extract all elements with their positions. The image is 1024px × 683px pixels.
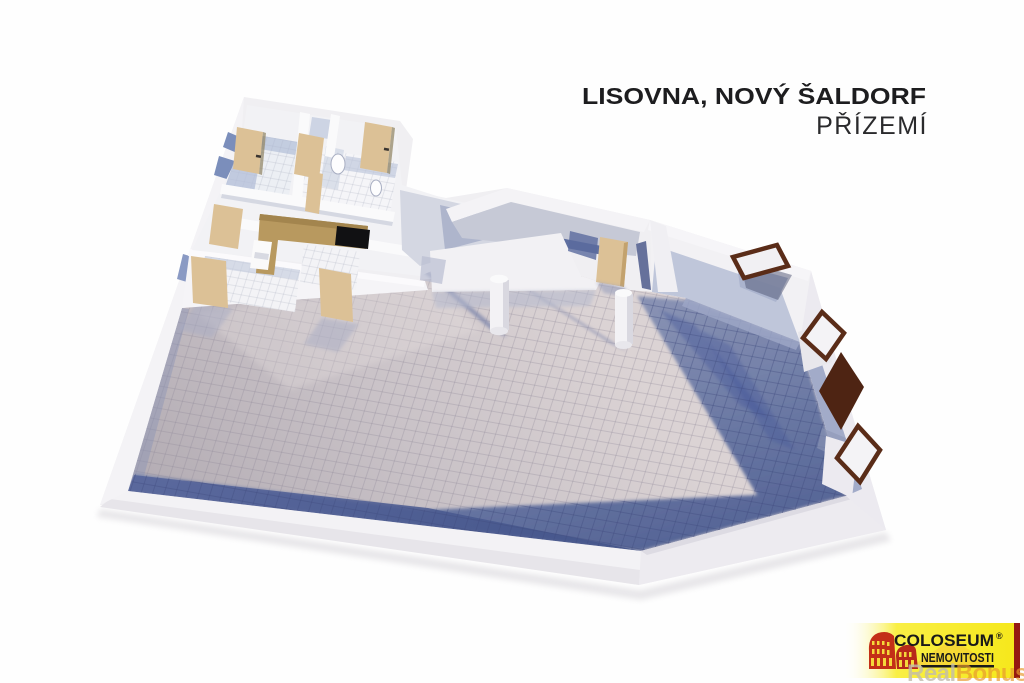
svg-text:®: ® xyxy=(996,631,1003,641)
svg-text:LISOVNA, NOVÝ ŠALDORF: LISOVNA, NOVÝ ŠALDORF xyxy=(582,82,926,109)
svg-text:RealBonus.cz: RealBonus.cz xyxy=(907,660,1024,683)
svg-text:COLOSEUM: COLOSEUM xyxy=(894,632,994,650)
svg-text:PŘÍZEMÍ: PŘÍZEMÍ xyxy=(816,111,928,140)
